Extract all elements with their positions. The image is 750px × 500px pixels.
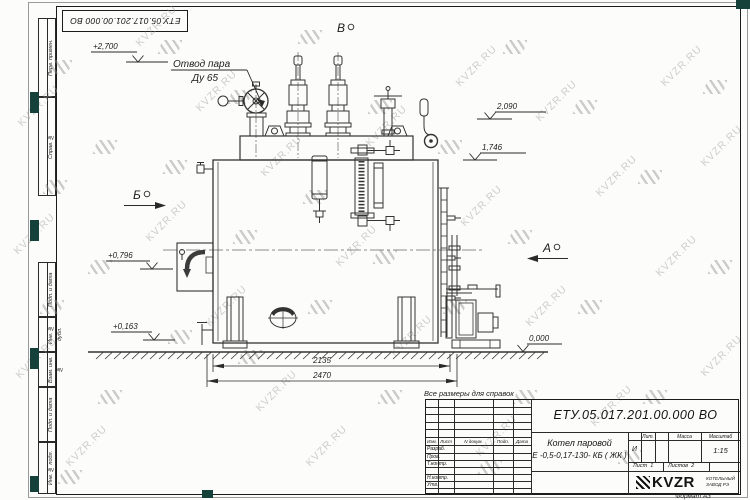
left-top-valve (197, 163, 213, 174)
callout-dn65: Ду 65 (191, 73, 218, 84)
edge-mark (736, 0, 750, 9)
format-note: Формат А3 (648, 493, 738, 500)
product-name-line1: Котел паровой (531, 438, 628, 448)
dim-2135-text: 2135 (312, 356, 331, 365)
row-utv: Утв. (427, 482, 438, 488)
elevation-0796 (106, 261, 173, 269)
manhole (268, 307, 298, 329)
edge-mark (30, 220, 39, 241)
left-drain-valve (197, 323, 213, 346)
view-label-a: А (542, 241, 551, 255)
pressure-gauge (420, 99, 438, 148)
row-prov: Пров. (427, 454, 440, 460)
feed-pump-unit (446, 285, 500, 348)
dim-2470-text: 2470 (312, 371, 331, 380)
elev-0796-text: +0,796 (108, 251, 133, 260)
annotations (91, 24, 568, 387)
boiler-body (213, 160, 438, 343)
sheets-label: Листов 2 (668, 463, 694, 469)
reference-note: Все размеры для справок (424, 389, 514, 398)
elevation-2700 (91, 52, 168, 62)
elev-0163-text: +0,163 (113, 322, 138, 331)
col-list: Лист (438, 439, 454, 444)
view-label-v: В (337, 21, 345, 35)
sheet-label: Лист 1 (633, 463, 653, 469)
view-b-rotation-mark (348, 24, 354, 30)
title-doc-number: ЕТУ.05.017.201.00.000 ВО (531, 408, 740, 422)
water-column (312, 156, 327, 223)
elevation-2090 (477, 112, 546, 119)
company-subtitle: КОТЕЛЬНЫЙЗАВОД РЭ (706, 476, 735, 488)
edge-mark (30, 476, 39, 492)
edge-mark (202, 490, 213, 498)
row-nkontr: Н.контр. (427, 475, 448, 481)
dimension-lines (207, 354, 457, 387)
col-ndoc: N докум. (454, 439, 493, 444)
level-gauge (351, 140, 400, 231)
elev-2700-text: +2,700 (93, 42, 118, 51)
company-logo: KVZR (636, 474, 695, 491)
lit-label: Лит. (628, 434, 668, 440)
elevation-0163 (111, 332, 175, 340)
row-razrab: Разраб. (427, 446, 445, 452)
elev-1746-text: 1,746 (482, 143, 503, 152)
col-podp: Подп. (493, 439, 513, 444)
view-label-b: Б (133, 188, 141, 202)
scale-value: 1:15 (701, 446, 740, 455)
elev-0000-text: 0,000 (529, 334, 550, 343)
elevation-0000 (518, 344, 563, 352)
kvzr-spring-icon (636, 476, 650, 489)
support-leg-right (394, 297, 419, 348)
col-izm: Изм. (426, 439, 438, 444)
steam-outlet-valve (218, 82, 268, 136)
downcomer-pipe (449, 235, 460, 296)
rear-ladder (439, 188, 461, 337)
mass-label: Масса (668, 434, 701, 440)
drawing-sheet: KVZR.RUKVZR.RUKVZR.RUKVZR.RUKVZR.RUKVZR.… (0, 0, 750, 500)
scale-label: Масштаб (701, 434, 740, 440)
view-arrow-b-left (124, 191, 166, 209)
elev-2090-text: 2,090 (496, 102, 518, 111)
title-block: ЕТУ.05.017.201.00.000 ВО Котел паровой Е… (425, 399, 739, 494)
lifting-lug-left (265, 126, 284, 136)
col-data: Дата (513, 439, 531, 444)
riser-valve (374, 87, 402, 137)
lit-value: И (628, 446, 641, 453)
elevation-1746 (463, 153, 526, 160)
row-tkontr: Т.контр. (427, 461, 447, 467)
edge-mark (30, 92, 39, 113)
edge-mark (30, 348, 39, 369)
callout-steam-outlet: Отвод пара (173, 59, 231, 70)
product-name-line2: Е -0,5-0,17-130- КБ ( ЖК ) (531, 451, 628, 460)
support-leg-left (223, 297, 247, 348)
